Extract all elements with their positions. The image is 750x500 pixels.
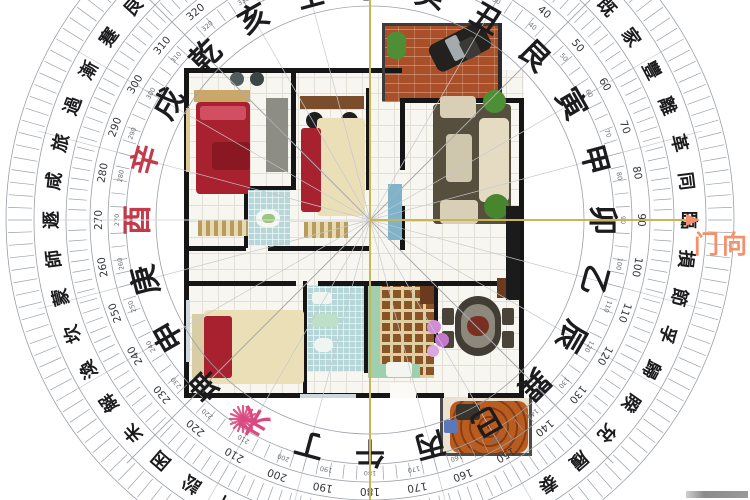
- sink: [312, 292, 332, 304]
- dining-centerpiece: [467, 316, 489, 336]
- terrace-wall: [529, 398, 532, 456]
- wall: [468, 393, 524, 398]
- soap: [262, 214, 275, 223]
- bath-mat: [312, 314, 338, 327]
- wall: [291, 68, 296, 190]
- terrace-wall: [440, 398, 443, 456]
- bed1-pillow: [200, 106, 246, 120]
- bed2-headboard: [300, 96, 364, 109]
- wall: [366, 88, 371, 190]
- cushion: [230, 72, 244, 86]
- wall: [400, 98, 405, 170]
- sofa-small: [440, 200, 478, 224]
- door-direction-label: 门向: [694, 225, 750, 261]
- bed1-headboard: [194, 90, 250, 102]
- bed2: [317, 118, 365, 216]
- bed3-throw: [204, 316, 232, 378]
- tv-cabinet: [506, 206, 520, 300]
- chair: [502, 308, 514, 325]
- sofa-long: [479, 118, 509, 202]
- watermark-bar: [686, 491, 748, 498]
- wall: [184, 246, 246, 251]
- balcony-wall: [382, 23, 385, 101]
- window: [300, 394, 356, 398]
- bed2-throw: [301, 128, 321, 212]
- window: [186, 108, 190, 172]
- terrace-table: [456, 404, 480, 420]
- bench: [304, 222, 348, 238]
- bed3-headboard: [192, 314, 204, 378]
- stove: [386, 362, 412, 377]
- wall: [184, 281, 296, 286]
- cushion: [250, 72, 264, 86]
- bed1-throw: [212, 142, 250, 170]
- terrace-chair: [444, 420, 458, 433]
- cabinet: [388, 184, 402, 240]
- wardrobe: [266, 98, 288, 172]
- balcony-wall: [382, 23, 502, 26]
- flowers: [435, 333, 449, 347]
- sofa-small: [440, 96, 476, 118]
- bench: [198, 220, 250, 236]
- flowers: [427, 345, 439, 357]
- chair: [442, 308, 454, 325]
- coffee-table: [446, 134, 472, 182]
- flowers: [427, 320, 441, 334]
- entry-door: [390, 383, 416, 398]
- toilet: [314, 338, 333, 352]
- wall: [268, 246, 370, 251]
- balcony-plant: [387, 32, 406, 59]
- plant: [483, 90, 506, 113]
- balcony-wall: [498, 23, 502, 101]
- window: [186, 300, 190, 362]
- chair: [502, 331, 514, 348]
- kitchen-cabinet: [420, 286, 434, 304]
- floorplan-layer: [0, 0, 750, 500]
- terrace-wall: [440, 453, 532, 456]
- luopan-floorplan-scene: 0010102020303040405050606070708080909010…: [0, 0, 750, 500]
